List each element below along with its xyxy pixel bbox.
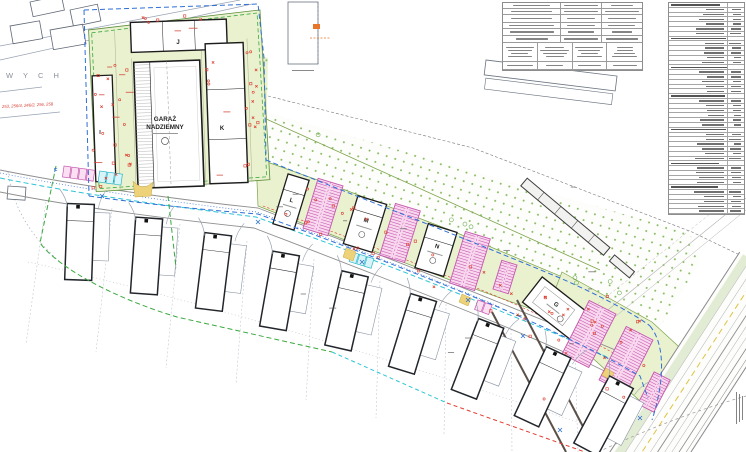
building-label-J: J <box>176 40 179 46</box>
legend-cell <box>503 29 561 35</box>
legend-cell <box>602 9 642 14</box>
garage-label-line2: NADZIEMNY <box>146 124 184 131</box>
legend-cell <box>503 9 561 14</box>
legend-row <box>669 209 744 214</box>
building-label-K: K <box>220 126 225 132</box>
legend-cell <box>503 62 538 69</box>
legend-cell <box>602 3 642 8</box>
legend-row <box>503 62 642 70</box>
legend-cell <box>503 3 561 8</box>
plot-numbers-label: 253, 256/4, 246/2, 256, 258 <box>1 101 54 109</box>
garage-label-line1: GARAŻ <box>154 115 177 123</box>
legend-row <box>503 15 642 23</box>
housing-block <box>57 189 111 281</box>
boundary-cyan <box>332 352 447 403</box>
legend-cell <box>602 15 642 22</box>
legend-cell <box>607 62 642 69</box>
legend-cell <box>503 23 561 28</box>
legend-cell <box>561 36 601 42</box>
legend-table-parameters <box>502 2 643 71</box>
legend-cell <box>602 29 642 35</box>
legend-table-areas <box>668 2 745 215</box>
housing-block <box>252 236 318 333</box>
legend-cell <box>538 62 573 69</box>
legend-cell <box>503 36 561 42</box>
legend-row <box>503 43 642 62</box>
legend-cell <box>561 15 601 22</box>
legend-row <box>503 36 642 43</box>
legend-cell <box>573 62 608 69</box>
legend-cell <box>561 29 601 35</box>
housing-block <box>317 255 387 354</box>
legend-cell <box>561 23 601 28</box>
main-complex <box>88 10 270 192</box>
street-name-label: W Y C H <box>6 71 63 80</box>
building-I <box>92 75 116 182</box>
housing-block <box>188 218 250 314</box>
site-plan-canvas: L M N G <box>0 0 746 452</box>
legend-cell <box>503 15 561 22</box>
legend-cell <box>607 43 642 61</box>
legend-cell <box>602 23 642 28</box>
legend-cell <box>573 43 608 61</box>
legend-cell <box>538 43 573 61</box>
building-K <box>205 43 248 184</box>
legend-cell <box>602 36 642 42</box>
housing-block <box>381 278 456 379</box>
hydrant-marker-label: F <box>54 168 58 174</box>
legend-cell <box>503 43 538 61</box>
legend-row <box>503 29 642 36</box>
legend-cell <box>561 9 601 14</box>
existing-building-dashed <box>288 2 330 71</box>
legend-cell <box>561 3 601 8</box>
housing-block <box>122 203 179 296</box>
